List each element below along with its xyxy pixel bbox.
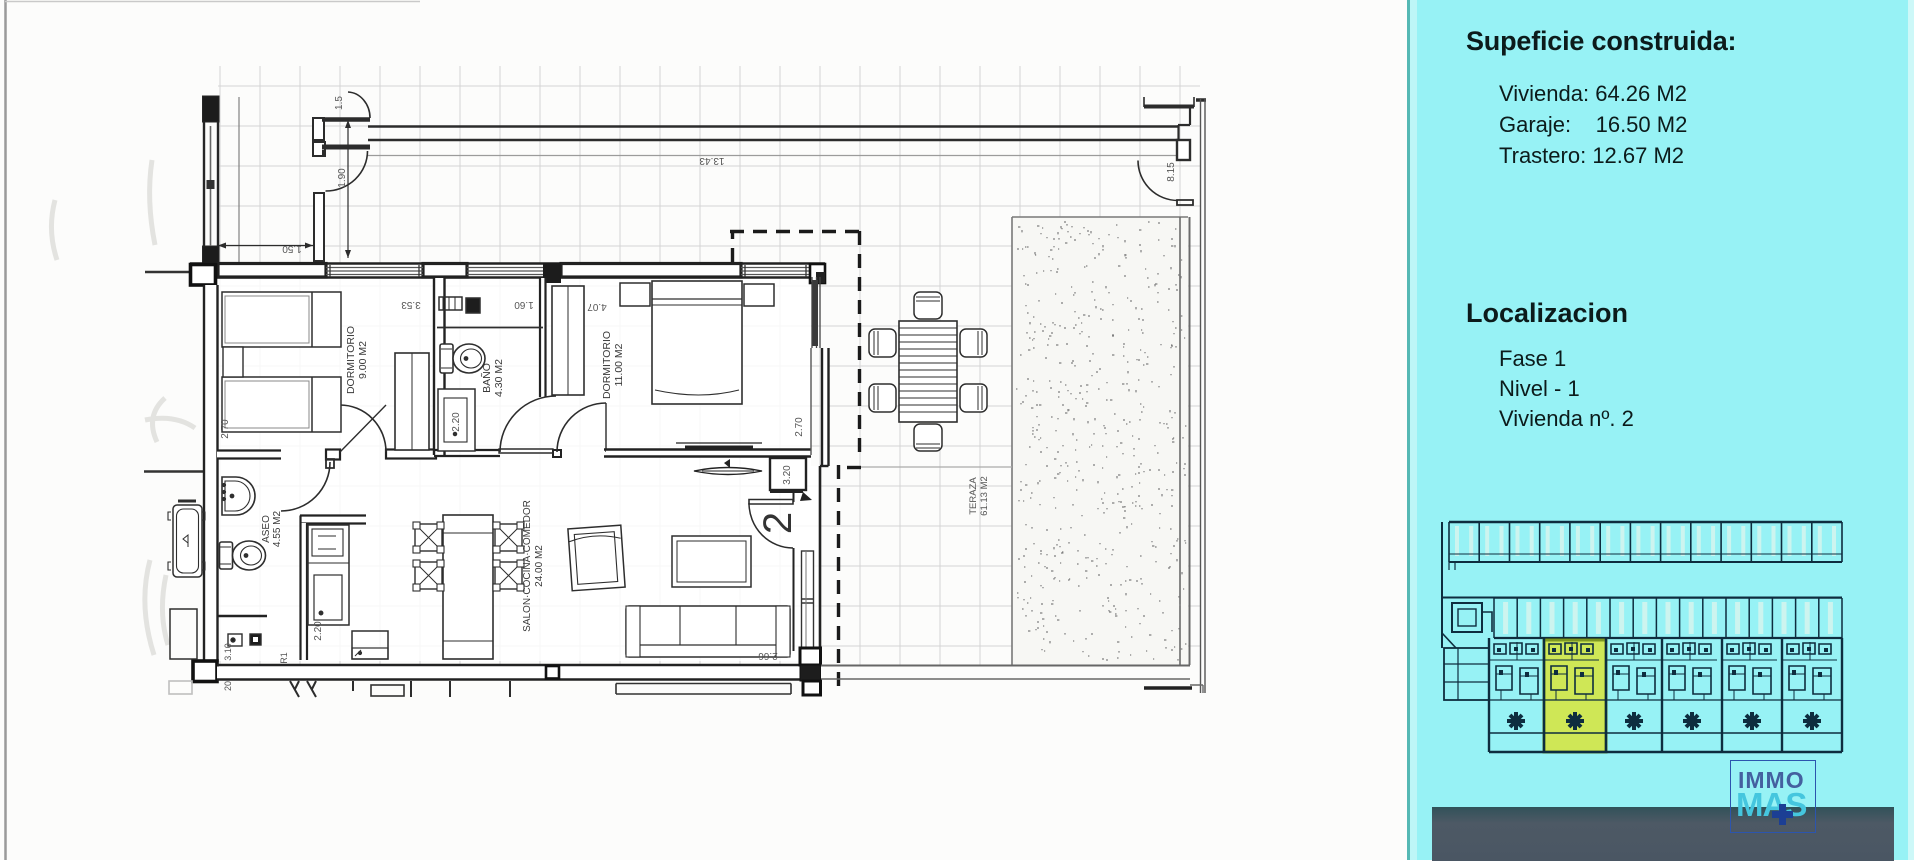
svg-text:2: 2 — [756, 512, 800, 534]
svg-text:3.20: 3.20 — [782, 465, 793, 485]
svg-text:2.20: 2.20 — [451, 412, 462, 432]
svg-text:4.07: 4.07 — [587, 301, 607, 312]
svg-text:11.00 M2: 11.00 M2 — [613, 343, 625, 386]
svg-text:DORMITORIO: DORMITORIO — [601, 331, 613, 399]
svg-text:8.15: 8.15 — [1166, 162, 1177, 182]
svg-text:3.53: 3.53 — [401, 299, 421, 310]
svg-text:13.43: 13.43 — [699, 155, 724, 166]
svg-text:4.30 M2: 4.30 M2 — [493, 359, 505, 397]
svg-text:20: 20 — [223, 681, 233, 691]
svg-text:1.60: 1.60 — [514, 299, 534, 310]
svg-text:61.13 M2: 61.13 M2 — [979, 476, 990, 516]
svg-text:9.00 M2: 9.00 M2 — [357, 341, 369, 379]
svg-text:TERAZA: TERAZA — [968, 477, 979, 515]
svg-text:3.10: 3.10 — [223, 643, 233, 661]
svg-text:R1: R1 — [279, 652, 289, 664]
svg-text:2.70: 2.70 — [794, 417, 805, 437]
svg-text:2.66: 2.66 — [758, 650, 778, 661]
svg-text:2.70: 2.70 — [220, 419, 231, 439]
svg-text:BAÑO: BAÑO — [480, 363, 493, 393]
svg-text:4.55 M2: 4.55 M2 — [272, 510, 283, 547]
svg-text:1.50: 1.50 — [282, 243, 302, 254]
svg-text:24.00 M2: 24.00 M2 — [534, 545, 545, 587]
svg-text:DORMITORIO: DORMITORIO — [345, 326, 357, 394]
svg-text:SALON·COCINA·COMEDOR: SALON·COCINA·COMEDOR — [522, 500, 533, 632]
svg-text:1.90: 1.90 — [337, 168, 348, 188]
svg-text:1.5: 1.5 — [334, 96, 345, 110]
svg-text:ASEO: ASEO — [261, 515, 272, 543]
svg-text:2.20: 2.20 — [313, 621, 324, 641]
